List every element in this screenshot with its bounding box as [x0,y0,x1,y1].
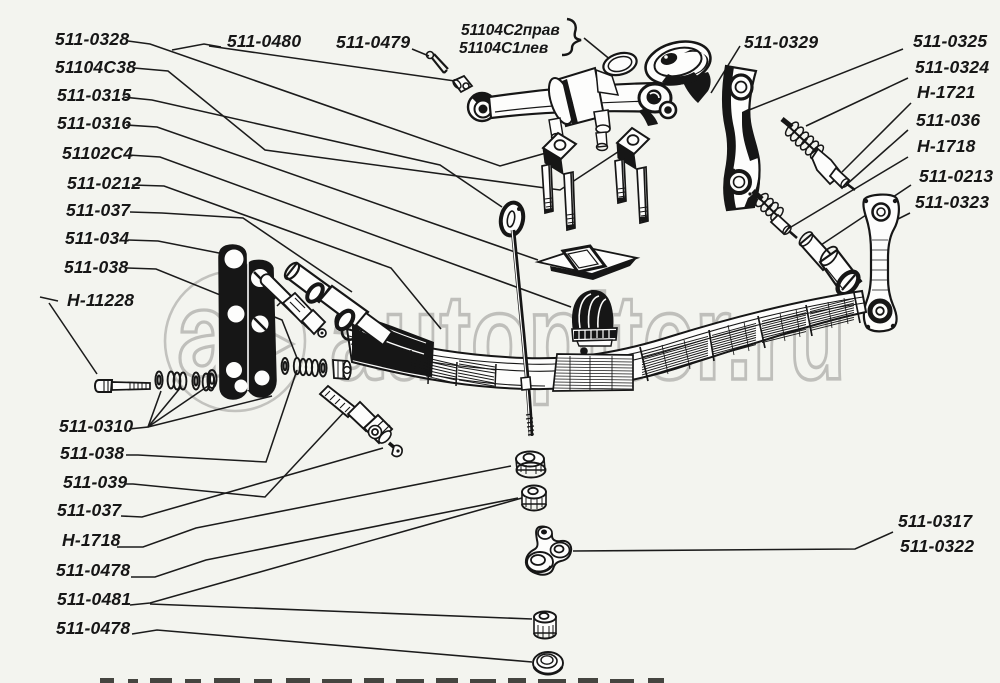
svg-text:511-037: 511-037 [57,500,122,520]
svg-text:511-0213: 511-0213 [919,166,993,186]
svg-text:511-034: 511-034 [65,228,129,248]
svg-text:H-1721: H-1721 [917,82,976,102]
svg-text:511-0316: 511-0316 [57,113,131,133]
svg-text:511-037: 511-037 [66,200,131,220]
svg-text:511-038: 511-038 [60,443,124,463]
svg-text:511-0481: 511-0481 [57,589,131,609]
svg-text:511-0480: 511-0480 [227,31,301,51]
svg-text:H-1718: H-1718 [62,530,121,550]
svg-text:511-039: 511-039 [63,472,127,492]
svg-text:511-0324: 511-0324 [915,57,989,77]
svg-text:511-0317: 511-0317 [898,511,973,531]
svg-text:511-0323: 511-0323 [915,192,989,212]
svg-text:511-0315: 511-0315 [57,85,131,105]
svg-text:511-036: 511-036 [916,110,980,130]
svg-text:511-0329: 511-0329 [744,32,818,52]
svg-text:511-0328: 511-0328 [55,29,129,49]
svg-text:51104C1лев: 51104C1лев [459,40,548,57]
svg-text:511-0479: 511-0479 [336,32,410,52]
svg-text:51102C4: 51102C4 [62,143,133,163]
svg-text:511-0478: 511-0478 [56,560,130,580]
svg-text:H-11228: H-11228 [67,290,134,310]
svg-text:511-0310: 511-0310 [59,416,133,436]
svg-text:H-1718: H-1718 [917,136,976,156]
svg-text:51104C38: 51104C38 [55,57,136,77]
svg-text:511-0325: 511-0325 [913,31,987,51]
svg-text:511-038: 511-038 [64,257,128,277]
svg-text:511-0322: 511-0322 [900,536,974,556]
svg-text:511-0478: 511-0478 [56,618,130,638]
svg-text:51104C2прав: 51104C2прав [461,22,560,39]
svg-text:511-0212: 511-0212 [67,173,141,193]
